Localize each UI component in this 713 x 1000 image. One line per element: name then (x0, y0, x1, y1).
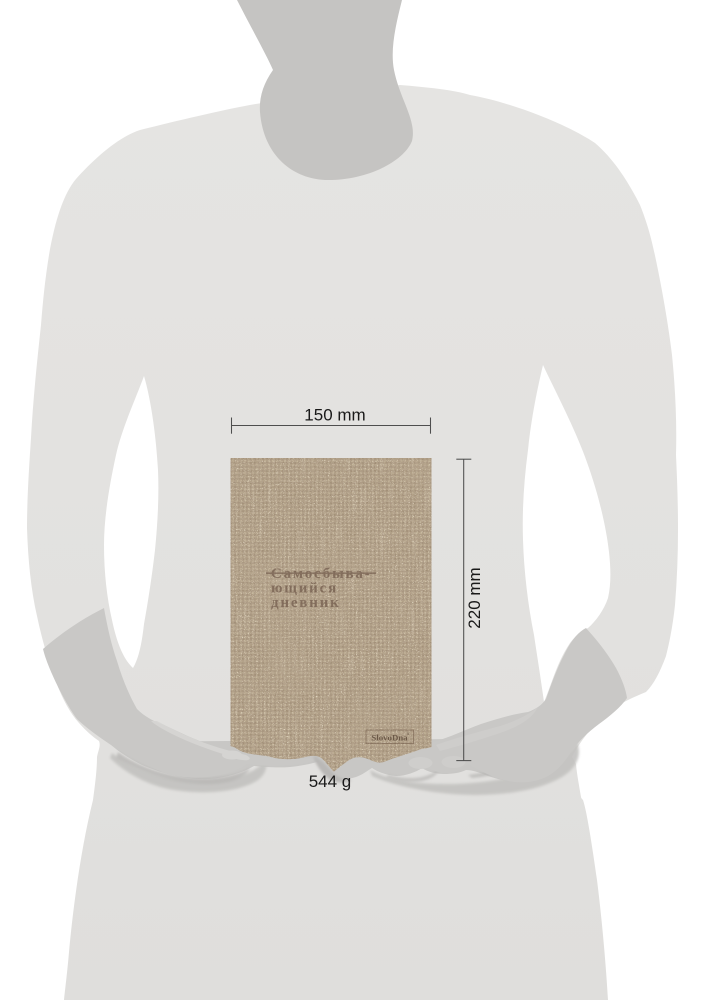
svg-text:SlovoDna: SlovoDna (371, 732, 408, 742)
svg-text:150 mm: 150 mm (304, 406, 365, 425)
svg-text:544 g: 544 g (309, 772, 352, 791)
svg-text:дневник: дневник (271, 595, 341, 611)
svg-text:Самосбыва-: Самосбыва- (271, 566, 372, 582)
svg-text:220 mm: 220 mm (465, 567, 484, 628)
